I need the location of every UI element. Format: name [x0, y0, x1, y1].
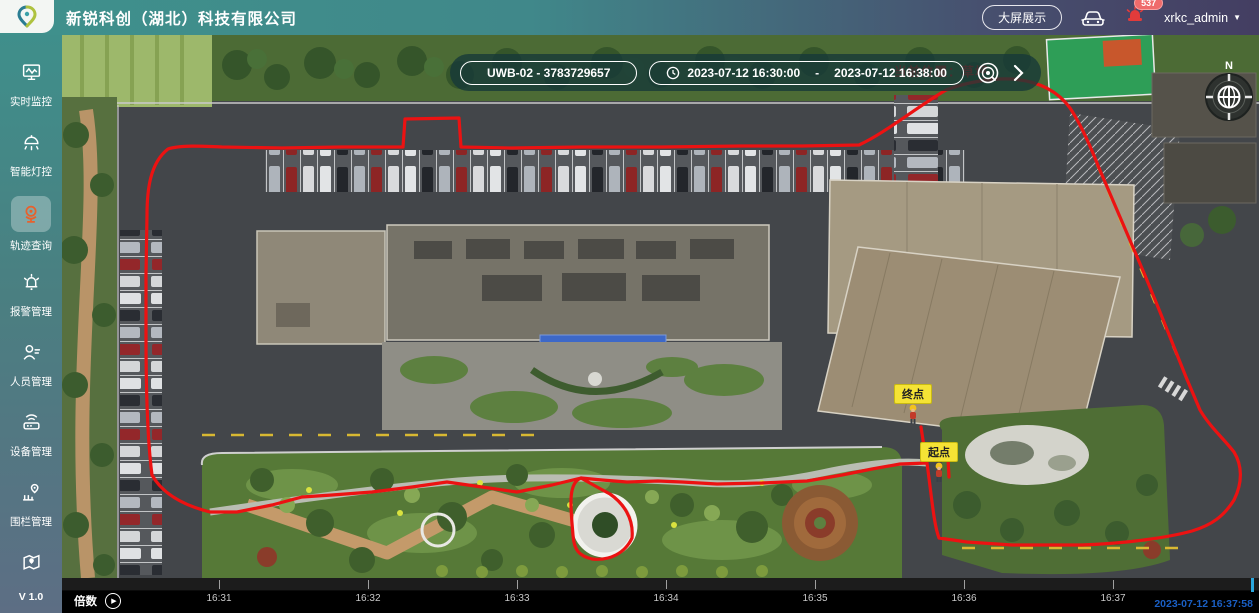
- date-start[interactable]: 2023-07-12 16:30:00: [687, 66, 800, 80]
- aerial-map-art: [62, 35, 1259, 578]
- end-point-marker: 终点: [894, 384, 932, 426]
- sidebar-item-trajectory-query[interactable]: 轨迹查询: [0, 187, 62, 257]
- timeline-tick-label: 16:36: [951, 593, 976, 604]
- clock-icon: [666, 66, 680, 80]
- current-playback-timestamp: 2023-07-12 16:37:58: [1154, 598, 1253, 610]
- timeline-tick-label: 16:33: [504, 593, 529, 604]
- sidebar-item-personnel-management[interactable]: 人员管理: [0, 327, 62, 397]
- notification-badge: 537: [1134, 0, 1163, 10]
- timeline-tick-label: 16:31: [206, 593, 231, 604]
- timeline-tick-label: 16:32: [355, 593, 380, 604]
- timeline-scrubber[interactable]: [62, 578, 1259, 591]
- timeline-tick-label: 16:37: [1100, 593, 1125, 604]
- timeline-tick: [1113, 580, 1114, 589]
- track-query-toolbar: UWB-02 - 3783729657 2023-07-12 16:30:00 …: [450, 54, 1041, 91]
- date-range-picker[interactable]: 2023-07-12 16:30:00 - 2023-07-12 16:38:0…: [649, 61, 964, 85]
- sidebar-item-label: 实时监控: [10, 94, 52, 109]
- chevron-right-icon: [1012, 64, 1025, 82]
- username: xrkc_admin: [1164, 11, 1228, 25]
- fence-pin-icon: [14, 476, 48, 508]
- sidebar-item-fence-management[interactable]: 围栏管理: [0, 467, 62, 537]
- timeline-tick: [219, 580, 220, 589]
- compass-north-label: N: [1225, 60, 1233, 72]
- play-icon: ▶: [111, 597, 116, 605]
- worker-figure-icon: [906, 404, 920, 426]
- start-point-label: 起点: [920, 442, 958, 462]
- app-header: 新锐科创（湖北）科技有限公司 大屏展示 537: [0, 0, 1259, 35]
- sidebar-item-label: 设备管理: [10, 444, 52, 459]
- timeline-tick: [517, 580, 518, 589]
- timeline-tick: [964, 580, 965, 589]
- version-label: V 1.0: [19, 591, 44, 603]
- tracking-app-window: 新锐科创（湖北）科技有限公司 大屏展示 537: [0, 0, 1259, 613]
- device-select[interactable]: UWB-02 - 3783729657: [460, 61, 637, 85]
- sidebar-item-alarm-management[interactable]: 报警管理: [0, 257, 62, 327]
- worker-figure-icon: [932, 462, 946, 484]
- sidebar-item-smart-light[interactable]: 智能灯控: [0, 117, 62, 187]
- timeline-tick: [815, 580, 816, 589]
- device-icon: [14, 406, 48, 438]
- monitor-icon: [14, 56, 48, 88]
- compass-control[interactable]: N: [1200, 57, 1258, 123]
- logo-pin-icon: [13, 4, 41, 30]
- user-menu[interactable]: xrkc_admin ▼: [1164, 11, 1241, 25]
- sidebar-item-label: 报警管理: [10, 304, 52, 319]
- map-icon: [14, 546, 48, 578]
- header-actions: 大屏展示 537 xrkc_admin: [982, 5, 1259, 30]
- end-point-label: 终点: [894, 384, 932, 404]
- big-screen-button[interactable]: 大屏展示: [982, 5, 1062, 30]
- page-title: 新锐科创（湖北）科技有限公司: [66, 7, 297, 29]
- sidebar-item-label: 轨迹查询: [10, 238, 52, 253]
- play-button[interactable]: ▶: [105, 593, 121, 609]
- playback-timeline-bar: 16:31 16:32 16:33 16:34 16:35 16:36 16:3…: [62, 578, 1259, 613]
- sidebar-item-label: 智能灯控: [10, 164, 52, 179]
- alarm-bell-icon: [14, 266, 48, 298]
- timeline-playhead[interactable]: [1251, 578, 1254, 592]
- company-logo: [0, 0, 54, 33]
- date-end[interactable]: 2023-07-12 16:38:00: [834, 66, 947, 80]
- search-icon: [976, 61, 1000, 85]
- sidebar-item-device-management[interactable]: 设备管理: [0, 397, 62, 467]
- aerial-map-viewport[interactable]: UWB-02 - 3783729657 2023-07-12 16:30:00 …: [62, 35, 1259, 578]
- speed-label: 倍数: [74, 593, 97, 609]
- search-button[interactable]: [976, 61, 1000, 85]
- alarm-notifications[interactable]: 537: [1124, 5, 1146, 30]
- track-camera-icon: [11, 196, 51, 232]
- panel-expand-button[interactable]: [1012, 64, 1025, 82]
- timeline-tick: [666, 580, 667, 589]
- person-icon: [14, 336, 48, 368]
- timeline-tick-label: 16:35: [802, 593, 827, 604]
- start-point-marker: 起点: [920, 442, 958, 484]
- sidebar-item-label: 围栏管理: [10, 514, 52, 529]
- car-icon[interactable]: [1080, 8, 1106, 28]
- sidebar-item-label: 人员管理: [10, 374, 52, 389]
- caret-down-icon: ▼: [1233, 13, 1241, 22]
- timeline-tick: [368, 580, 369, 589]
- lamp-icon: [14, 126, 48, 158]
- date-separator: -: [807, 66, 827, 80]
- sidebar-nav: 实时监控 智能灯控 轨迹查询: [0, 35, 62, 613]
- sidebar-item-map[interactable]: [0, 537, 62, 589]
- timeline-tick-label: 16:34: [653, 593, 678, 604]
- sidebar-item-realtime-monitor[interactable]: 实时监控: [0, 47, 62, 117]
- playback-speed-control: 倍数 ▶: [74, 593, 121, 609]
